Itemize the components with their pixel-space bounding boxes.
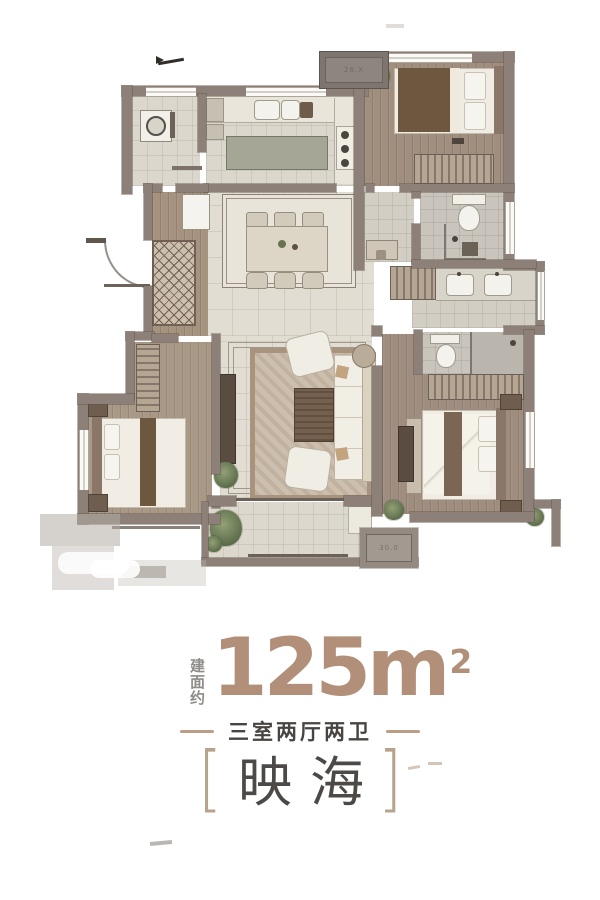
wall — [412, 260, 536, 268]
balcony-plant-small — [206, 536, 222, 552]
pillow — [478, 446, 498, 472]
window — [79, 430, 89, 490]
wall — [212, 334, 220, 474]
window — [525, 412, 535, 468]
subtitle-dash-right — [386, 730, 420, 733]
toilet-tank-ensuite — [430, 334, 460, 344]
ac-plate-bottom-label: 30.0 — [360, 528, 418, 568]
window — [246, 87, 326, 97]
sofa-cushion — [335, 447, 349, 461]
table-decor — [292, 244, 298, 250]
wall — [144, 286, 152, 338]
bed-master-headboard — [496, 408, 506, 500]
window — [537, 272, 545, 320]
wall — [204, 184, 336, 192]
project-name-row: [ 映海 ] — [0, 738, 600, 817]
wall — [78, 394, 134, 404]
wall — [122, 86, 132, 194]
neighbor-stub — [40, 514, 120, 546]
area-superscript: 2 — [449, 642, 472, 681]
north-arrow-icon — [158, 58, 184, 65]
armchair — [283, 445, 332, 493]
wall — [552, 500, 560, 546]
fridge — [206, 98, 224, 122]
wall — [400, 184, 514, 192]
laundry-shelf — [172, 166, 202, 170]
kitchen-cabinet-left — [206, 124, 224, 140]
vanity-basin-right — [484, 274, 512, 296]
faucet — [495, 272, 499, 276]
wall — [414, 330, 422, 374]
area-value-row: 125m 2 — [212, 630, 472, 706]
laundry-cabinet — [170, 112, 175, 138]
nightstand — [500, 394, 522, 410]
wall — [372, 366, 382, 516]
washing-machine-door — [146, 116, 166, 136]
wall — [366, 184, 374, 192]
name-bracket-left: [ — [198, 742, 222, 814]
dining-table — [246, 226, 328, 272]
slippers — [452, 138, 464, 144]
wall — [126, 332, 134, 400]
area-label: 建面约 — [190, 658, 207, 706]
shower-drain — [452, 236, 458, 242]
pillow — [464, 72, 486, 100]
shower-area-ensuite — [470, 332, 524, 374]
toilet-bowl-ensuite — [436, 344, 456, 368]
kitchen-island — [226, 136, 328, 170]
wall — [412, 224, 420, 264]
dining-chair — [302, 272, 324, 289]
pillow — [104, 424, 120, 450]
side-table — [352, 344, 376, 368]
plant — [384, 500, 404, 520]
wall — [354, 60, 364, 270]
vanity-basin-left — [446, 274, 474, 296]
window — [505, 202, 515, 254]
sofa-cushion — [335, 365, 349, 379]
toilet-tank — [452, 194, 486, 205]
tv-cabinet — [220, 374, 236, 464]
window — [386, 53, 472, 63]
shower-glass-v — [444, 224, 446, 260]
ac-plate-top-label: 26.X — [320, 52, 388, 88]
wall — [198, 94, 206, 152]
dining-chair — [246, 272, 268, 289]
entry-closet — [182, 194, 210, 230]
area-value: 125m — [212, 630, 446, 706]
dining-chair — [274, 272, 296, 289]
bed-top-blanket — [398, 68, 450, 132]
console-chair — [376, 250, 386, 260]
tv-cabinet-master — [398, 426, 414, 482]
smudge — [386, 24, 404, 28]
entry-rug — [152, 240, 196, 326]
name-bracket-right: ] — [378, 742, 402, 814]
shower-glass-ensuite — [470, 332, 472, 374]
ac-plate-bottom: 30.0 — [360, 528, 418, 568]
bed-top-sheet-fold — [450, 68, 460, 132]
wall — [144, 184, 152, 240]
wardrobe-top-bedroom — [414, 154, 494, 184]
balcony-wall — [202, 502, 208, 564]
wall — [208, 496, 236, 506]
burner-1 — [341, 131, 349, 139]
wall — [410, 512, 534, 522]
coffee-table — [294, 388, 334, 442]
subtitle-dash-left — [180, 730, 214, 733]
fade-blotch — [90, 560, 140, 578]
balcony-front-bar — [248, 554, 348, 557]
wall — [412, 192, 420, 198]
ac-plate-top: 26.X — [320, 52, 388, 88]
toilet-bowl — [458, 205, 480, 231]
floor-plan: 26.X 30.0 — [0, 0, 600, 600]
bed-master-runner — [444, 412, 462, 496]
table-decor — [278, 240, 286, 248]
burner-2 — [341, 145, 349, 153]
window — [146, 87, 196, 97]
smudge — [428, 762, 442, 765]
hall-cabinet — [390, 266, 436, 300]
burner-3 — [341, 159, 349, 167]
wall — [152, 334, 178, 342]
balcony-door-sill — [236, 498, 344, 501]
window-sill — [112, 526, 200, 529]
pillow — [464, 102, 486, 130]
exterior-wall-stub — [86, 238, 106, 243]
faucet — [457, 272, 461, 276]
wall — [176, 184, 208, 192]
kitchen-sink-left — [254, 100, 280, 120]
bed-top-headboard — [494, 66, 504, 134]
pillow — [104, 454, 120, 480]
bed-left-runner — [140, 418, 156, 506]
smudge — [150, 840, 172, 846]
entry-door-arc — [104, 240, 150, 288]
nightstand — [88, 494, 108, 512]
flyer: 26.X 30.0 建面约 125m 2 三室两厅两卫 [ 映海 ] — [0, 0, 600, 900]
coffee-maker — [300, 102, 313, 118]
wardrobe-left-bedroom — [136, 344, 160, 412]
shower-head-ensuite — [510, 340, 516, 346]
wall — [372, 326, 382, 336]
bath-cabinet — [462, 242, 478, 256]
project-name: 映海 — [238, 738, 382, 817]
pillow — [478, 416, 498, 442]
kitchen-sink-right — [281, 100, 300, 120]
